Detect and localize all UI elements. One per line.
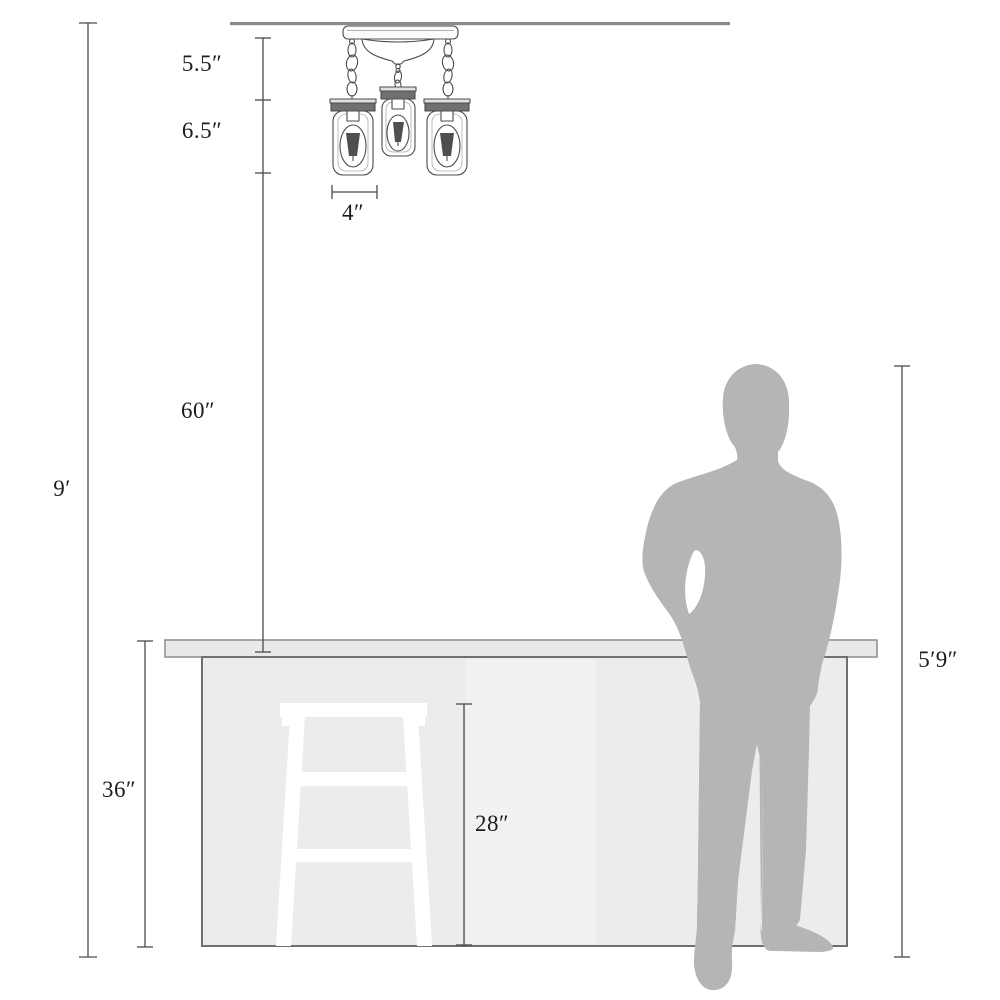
mason-jar-right	[424, 99, 470, 175]
stool-rung-upper	[296, 772, 412, 786]
chain-right-icon	[441, 39, 455, 100]
stool-seat	[280, 703, 427, 717]
diagram-scene	[0, 0, 1000, 1000]
label-ceiling-height: 9′	[53, 476, 71, 502]
stool-rung-lower	[291, 849, 417, 862]
chain-left-icon	[345, 39, 359, 100]
dim-line-fixture-drop	[255, 38, 271, 652]
island-highlight	[466, 659, 596, 944]
dim-line-person-height	[894, 366, 910, 957]
mason-jar-center	[380, 87, 416, 156]
label-stool-height: 28″	[475, 811, 509, 837]
label-hanging-drop: 60″	[181, 398, 215, 424]
dim-line-jar-width	[332, 185, 377, 199]
dim-line-island-height	[137, 641, 153, 947]
canopy-plate	[343, 26, 458, 39]
mason-jar-fixture	[330, 26, 470, 175]
label-jar-width: 4″	[342, 200, 364, 226]
ceiling-line	[230, 22, 730, 25]
label-person-height: 5′9″	[918, 647, 958, 673]
label-island-height: 36″	[102, 777, 136, 803]
dim-line-ceiling-height	[79, 23, 97, 957]
label-jar-section-height: 6.5″	[182, 118, 222, 144]
label-canopy-drop: 5.5″	[182, 51, 222, 77]
dimension-diagram: 5.5″ 6.5″ 4″ 60″ 9′ 36″ 28″ 5′9″	[0, 0, 1000, 1000]
canopy-dome	[362, 39, 434, 64]
mason-jar-left	[330, 99, 376, 175]
